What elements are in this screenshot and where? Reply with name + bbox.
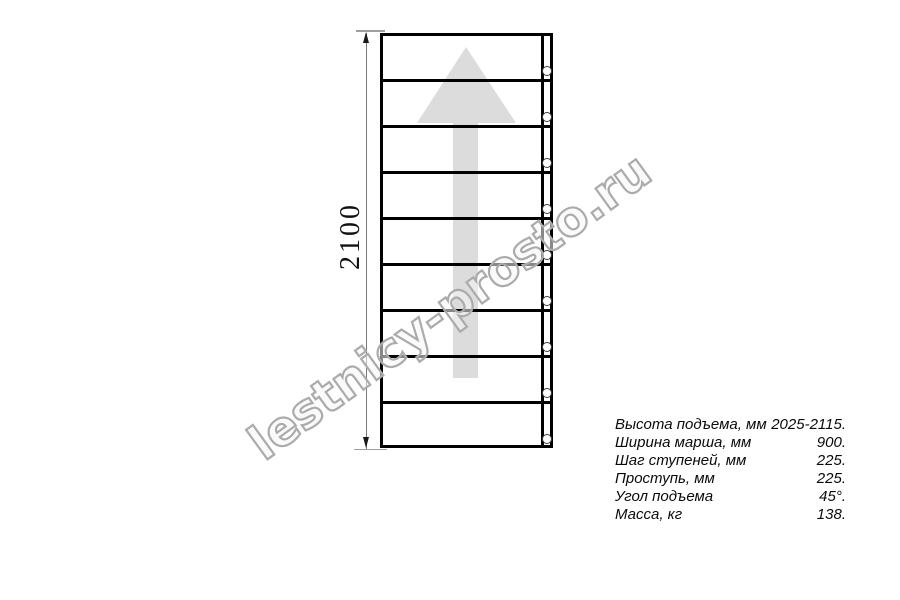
- tread-line: [383, 79, 550, 82]
- tread-line: [383, 125, 550, 128]
- bolt-circle: [542, 296, 552, 306]
- spec-row-mass: Масса, кг 138.: [615, 506, 846, 524]
- spec-value: 900.: [817, 434, 846, 452]
- bolt-circle: [542, 204, 552, 214]
- extension-line-top: [356, 30, 385, 32]
- bolt-circle: [542, 342, 552, 352]
- bolt-circle: [542, 250, 552, 260]
- dimension-label: 2100: [335, 202, 367, 270]
- spec-label: Высота подъема, мм: [615, 416, 767, 434]
- spec-value: 225.: [817, 452, 846, 470]
- spec-row-angle: Угол подъема 45°.: [615, 488, 846, 506]
- bolt-circle: [542, 434, 552, 444]
- bolt-circle: [542, 112, 552, 122]
- bolt-circle: [542, 158, 552, 168]
- tread-line: [383, 263, 550, 266]
- bolt-circle: [542, 388, 552, 398]
- spec-label: Шаг ступеней, мм: [615, 452, 746, 470]
- spec-value: 225.: [817, 470, 846, 488]
- spec-row-width: Ширина марша, мм 900.: [615, 434, 846, 452]
- spec-label: Угол подъема: [615, 488, 713, 506]
- spec-label: Масса, кг: [615, 506, 682, 524]
- stringer-line: [541, 36, 544, 445]
- spec-row-tread: Проступь, мм 225.: [615, 470, 846, 488]
- tread-line: [383, 217, 550, 220]
- bolt-circle: [542, 66, 552, 76]
- spec-label: Ширина марша, мм: [615, 434, 751, 452]
- direction-up-arrow-icon: [383, 36, 550, 445]
- tread-line: [383, 309, 550, 312]
- staircase-plan: [380, 33, 553, 448]
- dimension-arrow-top-icon: [363, 32, 369, 43]
- extension-line-bottom: [354, 449, 387, 451]
- specs-table: Высота подъема, мм 2025-2115. Ширина мар…: [615, 416, 846, 524]
- dimension-arrow-bottom-icon: [363, 437, 369, 448]
- tread-line: [383, 355, 550, 358]
- tread-line: [383, 401, 550, 404]
- spec-value: 2025-2115.: [771, 416, 846, 434]
- spec-row-height: Высота подъема, мм 2025-2115.: [615, 416, 846, 434]
- spec-label: Проступь, мм: [615, 470, 715, 488]
- spec-row-step: Шаг ступеней, мм 225.: [615, 452, 846, 470]
- tread-line: [383, 171, 550, 174]
- spec-value: 45°.: [819, 488, 846, 506]
- drawing-canvas: 2100 Высота подъема, мм 2025-2115. Ширин…: [0, 0, 900, 600]
- spec-value: 138.: [817, 506, 846, 524]
